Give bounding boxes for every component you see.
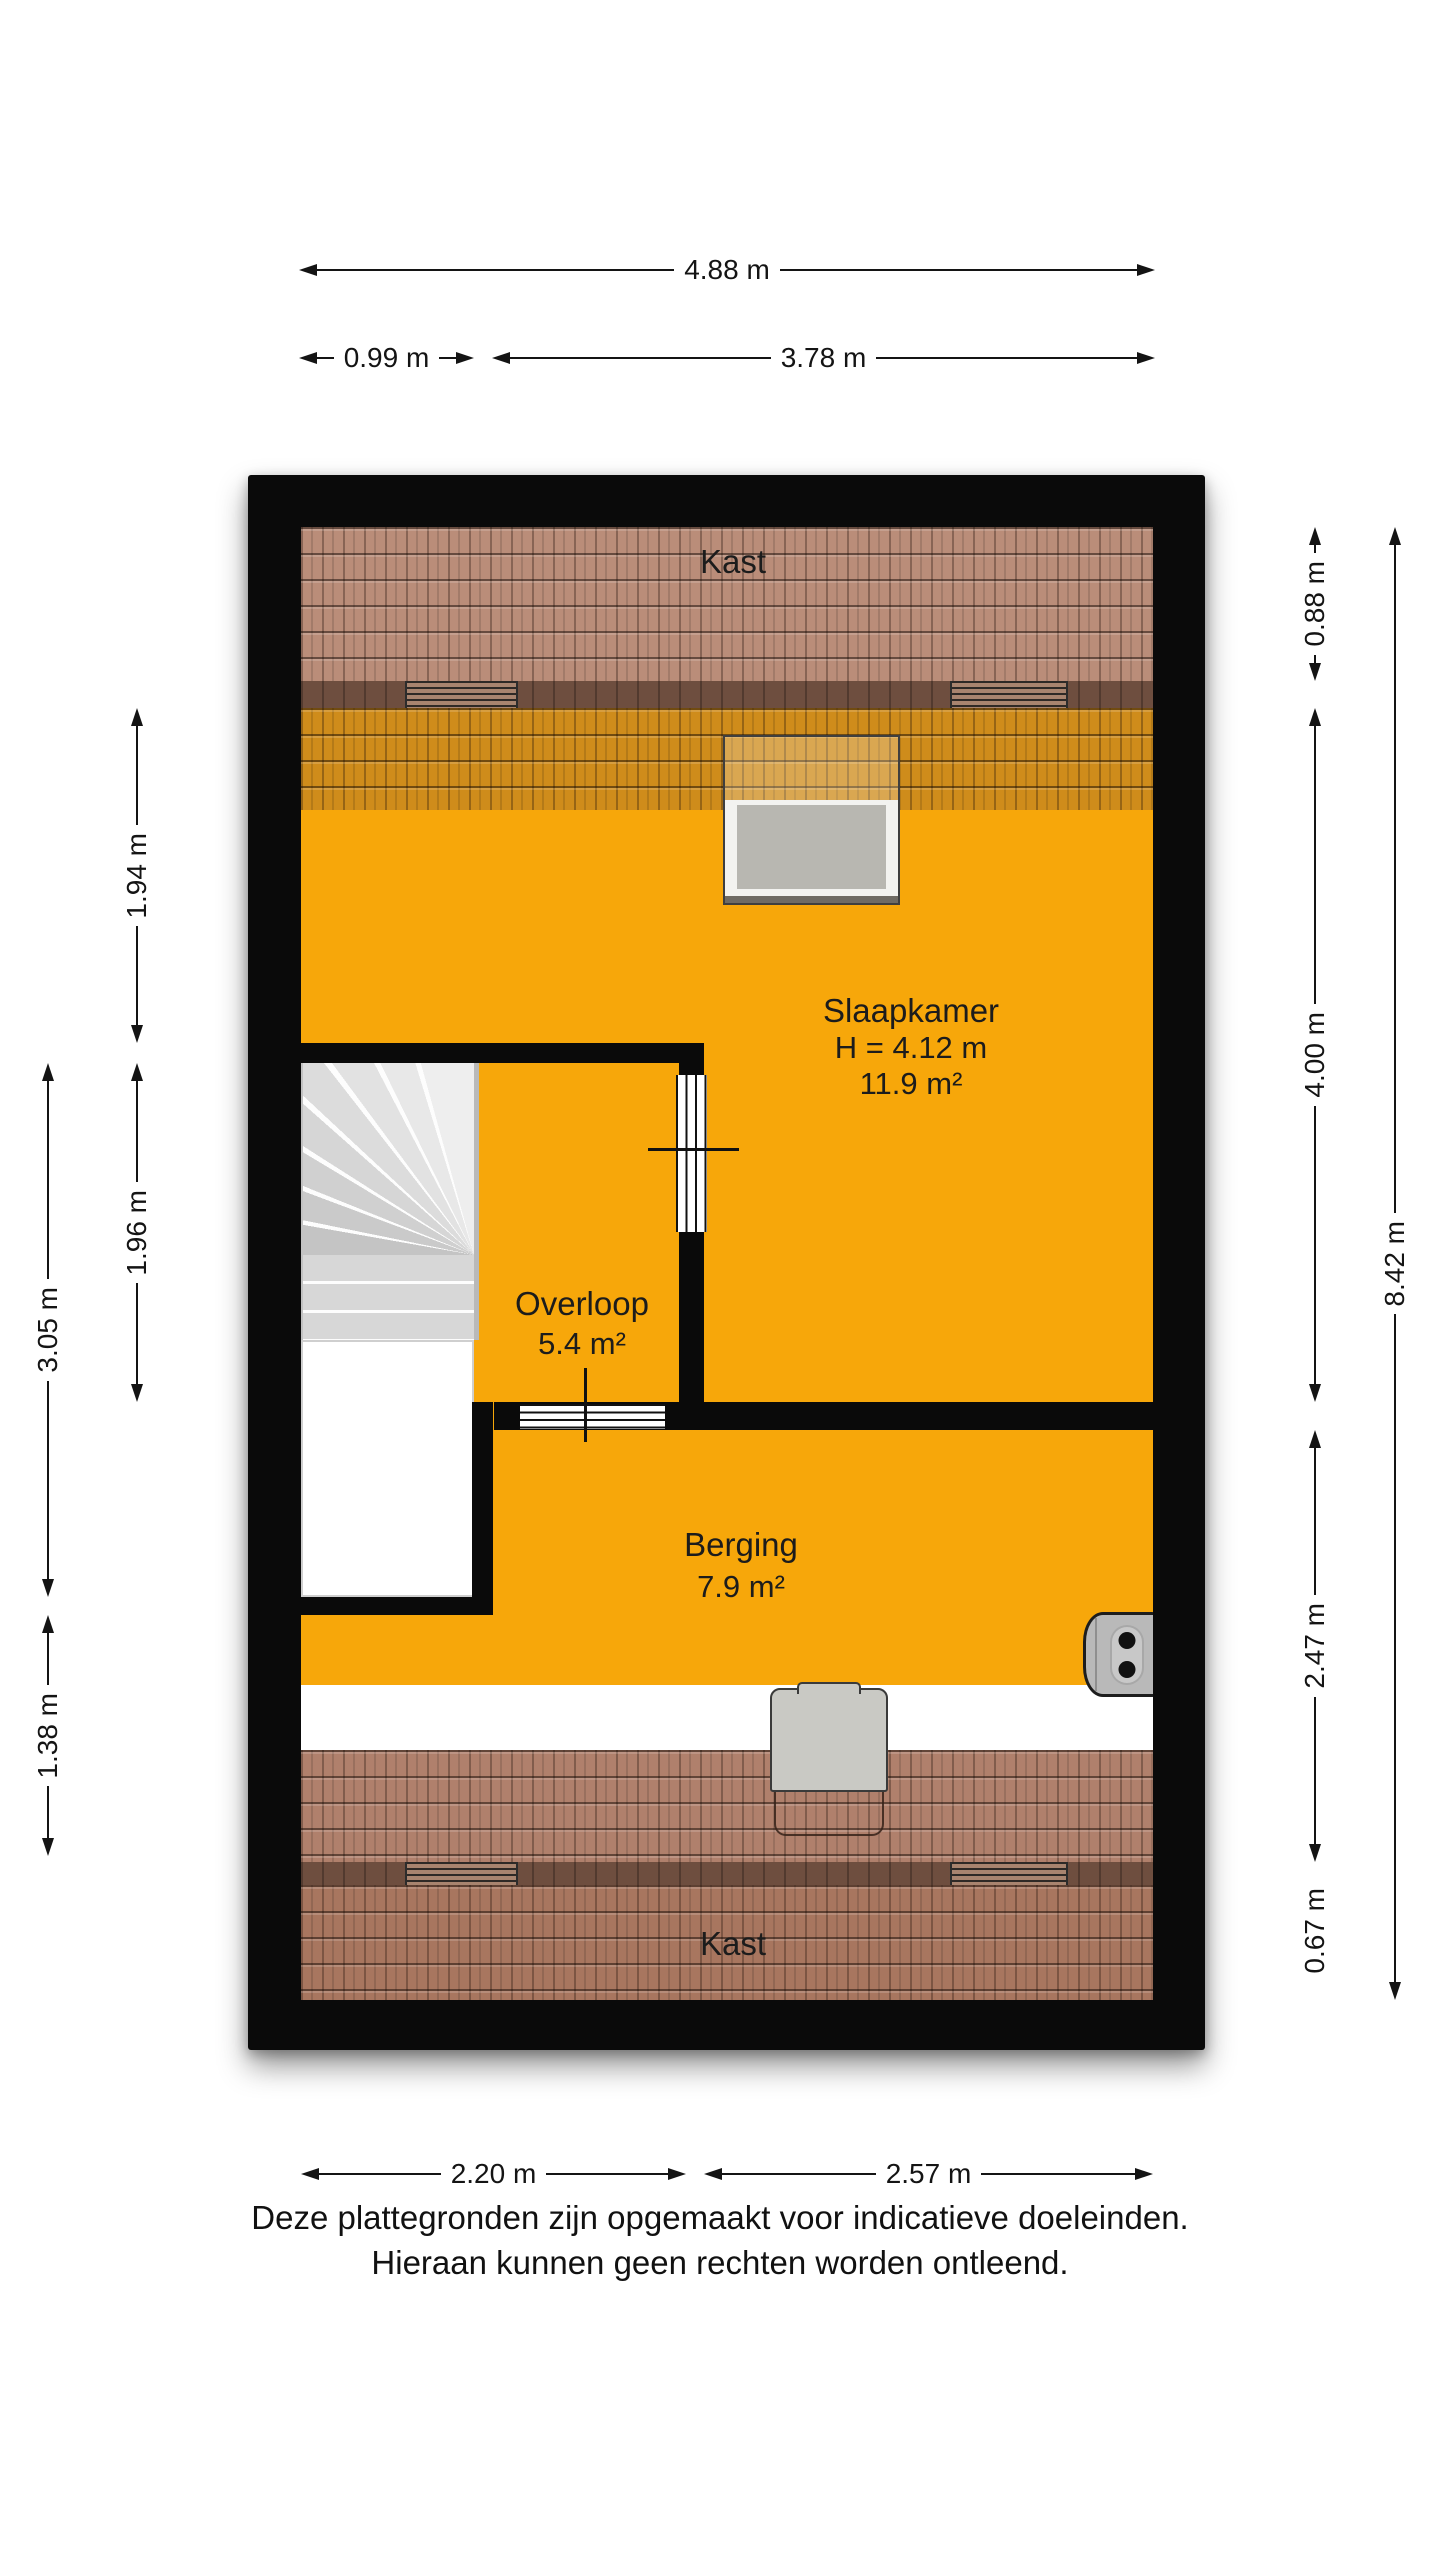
dim-left-outer-upper: 3.05 m — [33, 1063, 63, 1597]
dim-right-outer: 8.42 m — [1380, 527, 1410, 2000]
ventilation-flue-outline — [774, 1792, 884, 1836]
knee-window-top-left — [405, 681, 518, 708]
knee-window-bottom-right — [950, 1862, 1068, 1885]
stairwell-void — [301, 1340, 474, 1597]
dim-left-outer-lower: 1.38 m — [33, 1615, 63, 1856]
dim-right-inner-kast-bottom: 0.67 m — [1300, 1862, 1330, 2000]
dim-label: 8.42 m — [1379, 1213, 1411, 1315]
dim-bottom-left-segment: 2.20 m — [301, 2159, 686, 2189]
knee-window-bottom-left — [405, 1862, 518, 1885]
dim-left-inner-lower: 1.96 m — [122, 1063, 152, 1402]
dim-label: 2.57 m — [876, 2158, 982, 2190]
dim-label: 4.88 m — [674, 254, 780, 286]
dim-label: 0.88 m — [1299, 553, 1331, 655]
door-opening-berging — [520, 1404, 665, 1429]
dim-label: 4.00 m — [1299, 1004, 1331, 1106]
boiler-vent-dot — [1119, 1632, 1136, 1649]
dim-right-inner-kast-top: 0.88 m — [1300, 527, 1330, 681]
overloop-label: Overloop — [515, 1285, 649, 1323]
roof-berging-bottom — [301, 1750, 1153, 1862]
boiler-vent-dot — [1119, 1661, 1136, 1678]
dim-bottom-right-segment: 2.57 m — [704, 2159, 1153, 2189]
kast-bottom-label: Kast — [700, 1925, 766, 1963]
staircase-winder-steps — [301, 1063, 474, 1255]
dim-top-total: 4.88 m — [299, 255, 1155, 285]
dim-label: 2.47 m — [1299, 1595, 1331, 1697]
dim-label: 0.67 m — [1299, 1880, 1331, 1982]
slaapkamer-area-label: 11.9 m² — [860, 1066, 963, 1102]
stairwell-bottom-wall — [301, 1597, 493, 1615]
slaapkamer-label: Slaapkamer — [823, 992, 999, 1030]
skylight-window — [723, 735, 900, 905]
overloop-area-label: 5.4 m² — [538, 1326, 626, 1362]
berging-area-label: 7.9 m² — [697, 1569, 785, 1605]
boiler-edge-line — [1095, 1618, 1097, 1691]
dim-label: 0.99 m — [334, 342, 440, 374]
ventilation-unit — [770, 1688, 888, 1792]
boiler-unit — [1083, 1612, 1153, 1697]
wall-stairs-top — [301, 1043, 704, 1063]
disclaimer-line-1: Deze plattegronden zijn opgemaakt voor i… — [0, 2195, 1440, 2240]
dim-left-inner-upper: 1.94 m — [122, 708, 152, 1043]
floorplan-interior: Kast Slaapkamer H = 4.12 m 11.9 m² Overl… — [301, 527, 1153, 2000]
berging-label: Berging — [684, 1526, 798, 1564]
skylight-pane — [737, 805, 886, 889]
dim-top-left-segment: 0.99 m — [299, 343, 474, 373]
floorplan-page: 4.88 m 0.99 m 3.78 m 3.05 m 1.38 m 1.94 … — [0, 0, 1440, 2560]
knee-window-top-right — [950, 681, 1068, 708]
skylight-base-edge — [725, 896, 898, 903]
dim-label: 2.20 m — [441, 2158, 547, 2190]
internal-window — [676, 1075, 707, 1232]
staircase-side-line — [474, 1063, 479, 1340]
dim-label: 1.96 m — [121, 1182, 153, 1284]
internal-window-tick — [648, 1148, 739, 1151]
kast-top-label: Kast — [700, 543, 766, 581]
slaapkamer-height-label: H = 4.12 m — [835, 1030, 988, 1066]
door-opening-tick — [584, 1368, 587, 1442]
disclaimer: Deze plattegronden zijn opgemaakt voor i… — [0, 2195, 1440, 2285]
dim-right-inner-slaapkamer: 4.00 m — [1300, 708, 1330, 1402]
dim-label: 1.94 m — [121, 825, 153, 927]
staircase-straight-steps — [301, 1255, 474, 1340]
dim-label: 3.78 m — [771, 342, 877, 374]
dim-label: 3.05 m — [32, 1279, 64, 1381]
stairwell-side-wall — [472, 1402, 493, 1615]
building-outer-walls: Kast Slaapkamer H = 4.12 m 11.9 m² Overl… — [248, 475, 1205, 2050]
boiler-vent-pill — [1110, 1625, 1144, 1685]
disclaimer-line-2: Hieraan kunnen geen rechten worden ontle… — [0, 2240, 1440, 2285]
dim-label: 1.38 m — [32, 1685, 64, 1787]
dim-right-inner-berging: 2.47 m — [1300, 1430, 1330, 1862]
dim-top-right-segment: 3.78 m — [492, 343, 1155, 373]
